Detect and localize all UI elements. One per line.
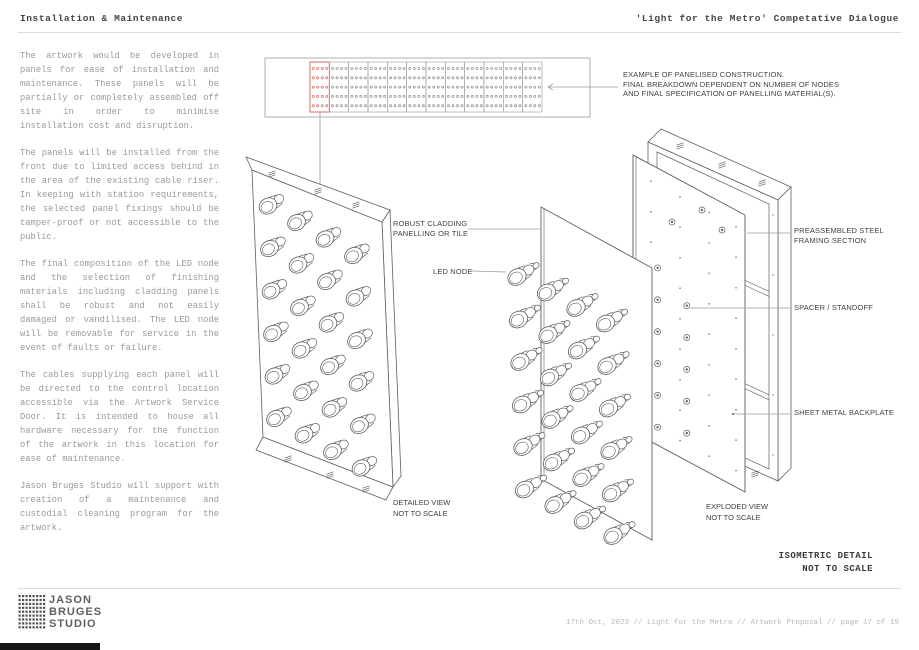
- detailed-view-caption: DETAILED VIEW NOT TO SCALE: [393, 498, 450, 519]
- jason-bruges-studio-logo: JASON BRUGES STUDIO: [18, 594, 102, 631]
- exploded-view-caption: EXPLODED VIEW NOT TO SCALE: [706, 502, 768, 523]
- corner-bar: [0, 643, 100, 650]
- isometric-detail-title: ISOMETRIC DETAIL NOT TO SCALE: [779, 550, 873, 576]
- document-page: Installation & Maintenance 'Light for th…: [0, 0, 919, 650]
- footer-meta: 17th Oct, 2023 // Light for the Metro //…: [566, 619, 899, 627]
- backplate-label: SHEET METAL BACKPLATE: [794, 408, 894, 418]
- cladding-label: ROBUST CLADDING PANELLING OR TILE: [393, 219, 468, 239]
- spacer-label: SPACER / STANDOFF: [794, 303, 873, 313]
- logo-dot-grid-icon: [18, 594, 47, 631]
- logo-text: JASON BRUGES STUDIO: [49, 594, 102, 631]
- led-node-label: LED NODE: [433, 267, 473, 277]
- detailed-panel-drawing: [246, 157, 401, 500]
- exploded-cladding-drawing: [505, 207, 652, 548]
- panel-strip-drawing: [265, 58, 618, 189]
- panelised-construction-label: EXAMPLE OF PANELISED CONSTRUCTION. FINAL…: [623, 70, 839, 99]
- footer-divider: [18, 588, 901, 589]
- framing-label: PREASSEMBLED STEEL FRAMING SECTION: [794, 226, 884, 246]
